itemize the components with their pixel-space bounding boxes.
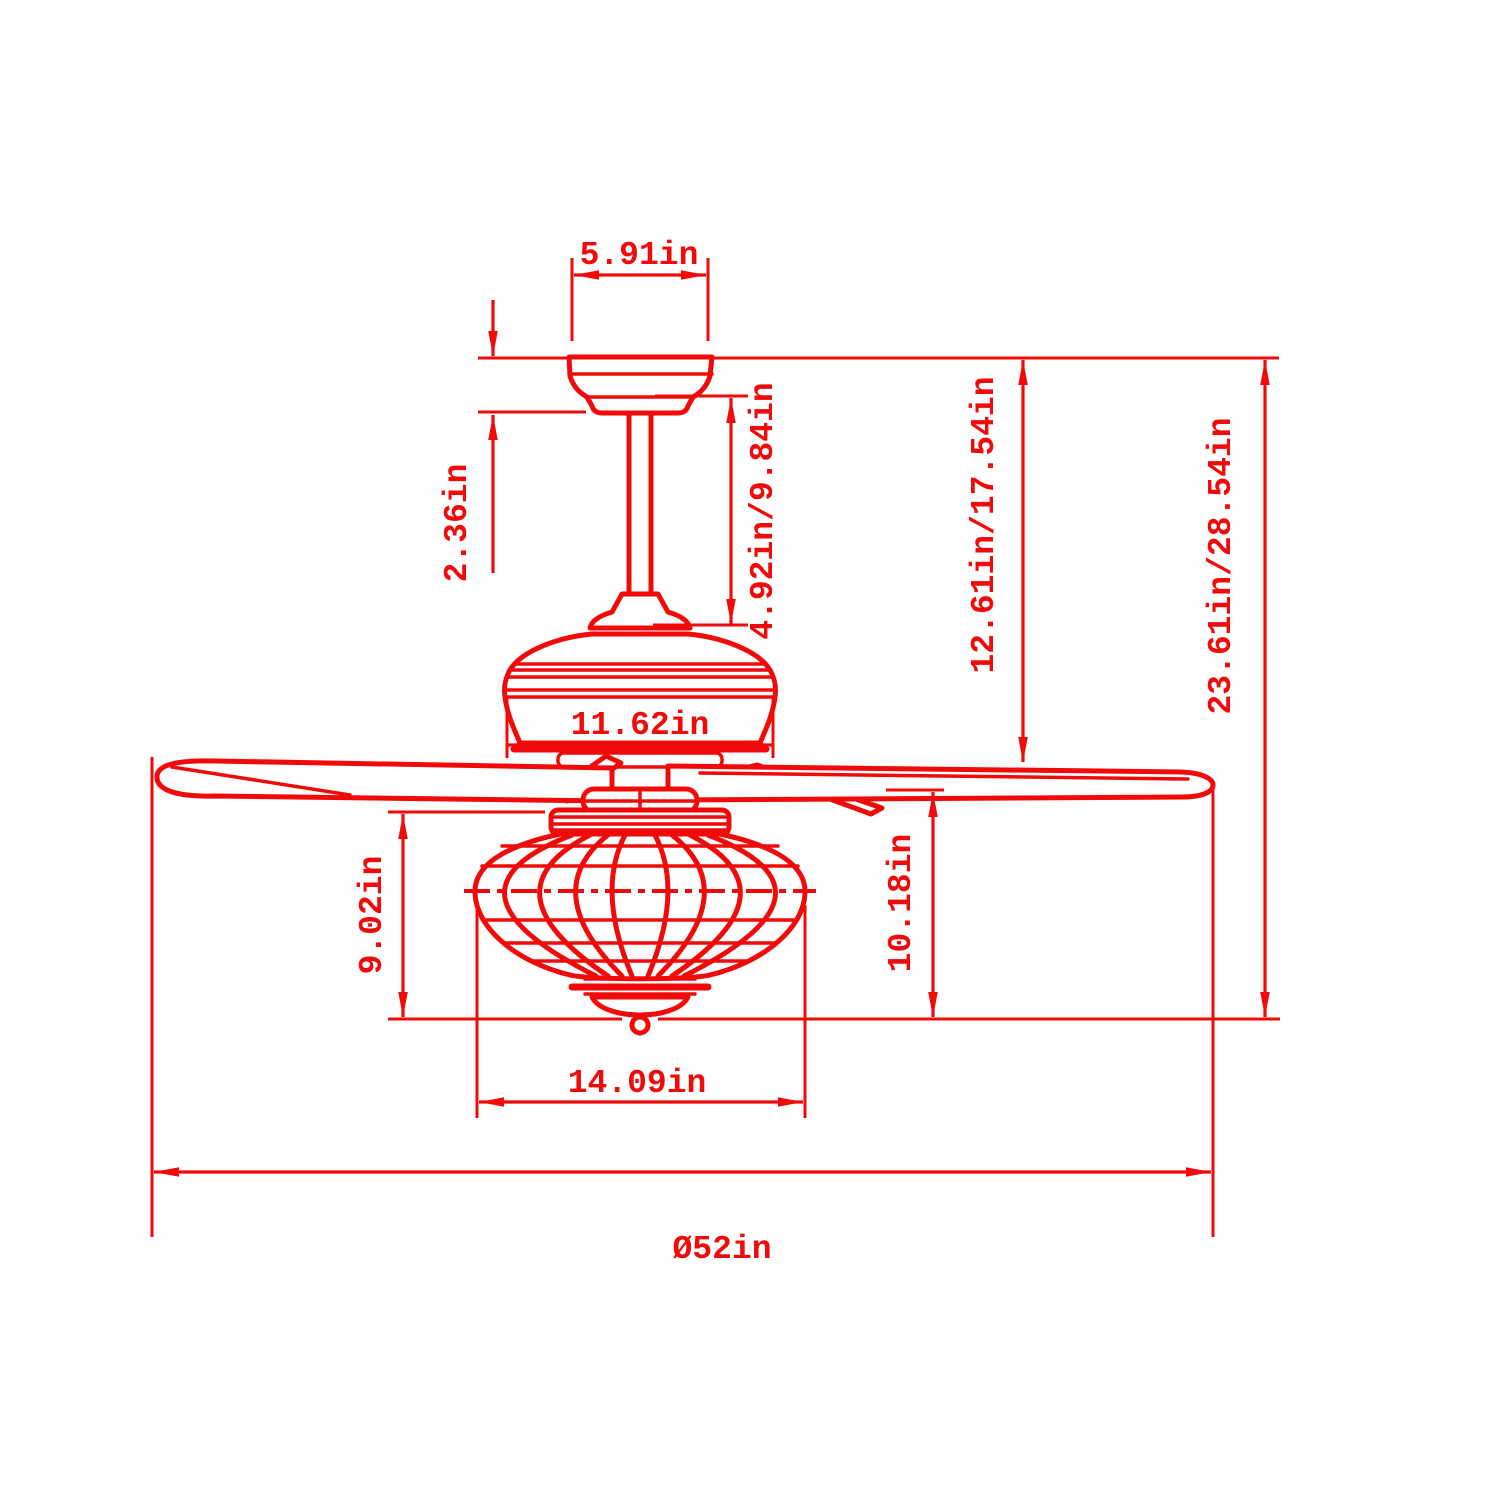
light-kit-width-label: 14.09in [568, 1065, 707, 1102]
light-kit-height-label: 9.02in [354, 856, 391, 975]
downrod-length-label: 4.92in/9.84in [745, 382, 782, 639]
diagram-canvas: 5.91in 2.36in 4.92in/9.84in 11.62in 12.6… [0, 0, 1500, 1500]
downrod-coupling [590, 594, 690, 628]
canopy-width-label: 5.91in [580, 237, 699, 274]
cage-rings [464, 846, 816, 961]
dimension-labels: 5.91in 2.36in 4.92in/9.84in 11.62in 12.6… [354, 237, 1240, 1268]
cage-bottom-finial [572, 979, 708, 1033]
light-fitter [551, 810, 729, 834]
downrod [590, 413, 690, 628]
motor-housing-width-label: 11.62in [571, 707, 710, 744]
total-height-label: 23.61in/28.54in [1203, 417, 1240, 714]
fan-dimension-diagram: 5.91in 2.36in 4.92in/9.84in 11.62in 12.6… [0, 0, 1500, 1500]
blades-to-bottom-label: 10.18in [883, 834, 920, 973]
right-blade [668, 766, 1213, 800]
ceiling-to-blades-label: 12.61in/17.54in [966, 376, 1003, 673]
blade-sweep-diameter-label: Ø52in [672, 1231, 771, 1268]
cage-outline [475, 834, 805, 979]
canopy [569, 357, 712, 413]
dimension-lines [154, 275, 1265, 1172]
motor-housing [504, 634, 775, 767]
light-cage [464, 834, 816, 1033]
canopy-height-label: 2.36in [439, 464, 476, 583]
cage-ribs [505, 835, 776, 976]
left-blade [157, 761, 612, 801]
finial-ball [632, 1017, 648, 1033]
